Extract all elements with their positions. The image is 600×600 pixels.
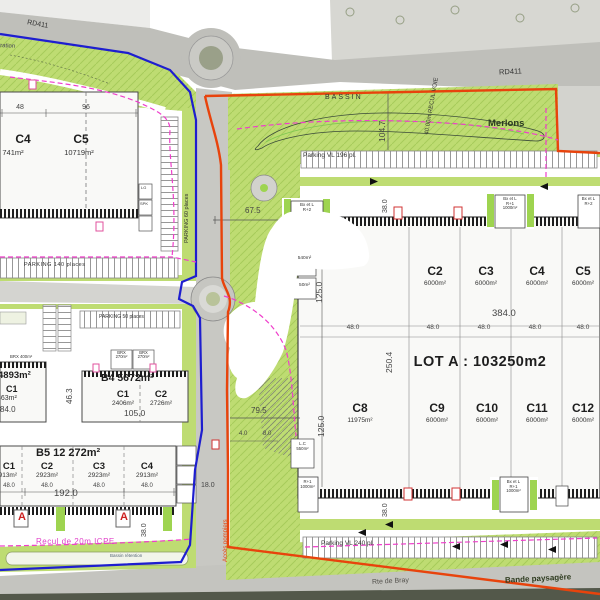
excluded-parcel xyxy=(558,86,600,151)
lota-d48-3: 48.0 xyxy=(469,325,499,332)
dim-79-5: 79.5 xyxy=(251,407,267,415)
lota-c5: C5 xyxy=(561,265,600,278)
lot-a-label: LOT A : 103250m2 xyxy=(385,355,575,370)
b5-c4-area: 2913m² xyxy=(127,473,167,480)
b5-title: B5 12 272m² xyxy=(36,448,100,460)
dim-38-top: 38.0 xyxy=(382,199,389,213)
lota-c9-area: 6000m² xyxy=(415,418,459,425)
label-brx-400: BRX 400m² xyxy=(10,355,32,360)
label-parking-60: PARKING 60 places xyxy=(185,194,191,243)
b5-c3-w: 48.0 xyxy=(79,483,119,489)
b5-c2-area: 2923m² xyxy=(27,473,67,480)
b5-depth: 38.0 xyxy=(141,523,148,537)
b4-c2-area: 2726m² xyxy=(146,401,176,408)
office-sw-label: R+1 1000m² xyxy=(297,480,318,489)
annex-50 xyxy=(293,278,316,299)
b3-c1: C1 xyxy=(6,385,18,394)
b5-c1: C1 xyxy=(0,462,29,472)
label-infiltration: d'infiltration xyxy=(0,42,15,50)
dim-104-7: 104.7 xyxy=(378,121,387,142)
annex-lc-label: L.C 550m² xyxy=(290,442,315,451)
brx-270-b: BRX 270m² xyxy=(133,351,154,360)
site-plan: RD411 RD411 Rte de Bray Bande paysagère … xyxy=(0,0,600,600)
lota-c10-area: 6000m² xyxy=(465,418,509,425)
b4-c1: C1 xyxy=(108,390,138,400)
lota-d250: 250.4 xyxy=(385,352,394,373)
office-n-label: Bx et L R+1 1000m² xyxy=(495,197,525,211)
lota-c11: C11 xyxy=(515,402,559,415)
office-nw-label: Bx et L R+2 xyxy=(291,203,323,212)
marker-a-1: A xyxy=(18,512,26,524)
dim-18-0: 18.0 xyxy=(201,482,215,489)
b5-c3-area: 2923m² xyxy=(79,473,119,480)
b5-width: 192.0 xyxy=(54,489,78,499)
label-parking-50: PARKING 50 places xyxy=(99,315,144,320)
site-plan-drawing xyxy=(0,0,600,600)
utility-spk: SPK xyxy=(140,202,148,206)
lota-d48-2: 48.0 xyxy=(418,325,448,332)
lota-c3: C3 xyxy=(464,265,508,278)
lota-c11-area: 6000m² xyxy=(515,418,559,425)
b4-c2: C2 xyxy=(146,390,176,400)
b5-c3: C3 xyxy=(79,462,119,472)
lota-c8: C8 xyxy=(338,402,382,415)
b5-c1-area: 2913m² xyxy=(0,473,26,480)
b4-depth: 46.3 xyxy=(66,388,74,404)
lota-d48-1: 48.0 xyxy=(338,325,368,332)
lota-d48-5: 48.0 xyxy=(568,325,598,332)
parking-60-strip xyxy=(161,117,178,251)
lota-c4: C4 xyxy=(515,265,559,278)
dim-4-0: 4.0 xyxy=(239,431,247,437)
label-bassin: BASSIN xyxy=(325,94,363,101)
marker-a-2: A xyxy=(120,512,128,524)
office-ne-label: Bx et L R+2 xyxy=(578,197,599,206)
dim-96: 96 xyxy=(76,104,96,111)
lota-c2: C2 xyxy=(413,265,457,278)
label-bassin-retention: Bassin rétention xyxy=(110,554,142,559)
b4-title: B4 5672m² xyxy=(101,373,154,384)
lota-c12: C12 xyxy=(561,402,600,415)
cell-c4-area: 741m² xyxy=(0,149,32,157)
label-merlons: Merlons xyxy=(488,119,524,129)
dim-67-5: 67.5 xyxy=(245,207,261,215)
label-parking-vl240: Parking VL 240 pl. xyxy=(321,541,374,548)
utility-boxes xyxy=(139,216,152,231)
b4-width: 105.0 xyxy=(124,409,145,418)
b5-c2: C2 xyxy=(27,462,67,472)
annex-540-label: 540m² xyxy=(293,256,316,261)
office-s-label: Bx et L R+1 1000m² xyxy=(499,480,528,494)
road-label-rd411-east: RD411 xyxy=(499,67,522,76)
lota-d384: 384.0 xyxy=(492,309,516,319)
lota-c4-area: 6000m² xyxy=(515,281,559,288)
b3-dim: 84.0 xyxy=(0,406,16,414)
lota-c5-area: 6000m² xyxy=(561,281,600,288)
brx-270-a: BRX 270m² xyxy=(111,351,132,360)
cell-c5-area: 10719m² xyxy=(56,149,102,157)
b5-c1-w: 48.0 xyxy=(0,483,29,489)
b5-c4: C4 xyxy=(127,462,167,472)
lota-c12-area: 6000m² xyxy=(561,418,600,425)
label-parking-140: PARKING 140 places xyxy=(24,263,85,269)
lota-c3-area: 6000m² xyxy=(464,281,508,288)
label-acces-pompiers: Accès pompiers xyxy=(223,519,229,562)
lota-d125-bottom: 125.0 xyxy=(317,416,326,437)
b4-c1-area: 2406m² xyxy=(108,401,138,408)
lota-c8-area: 11975m² xyxy=(338,418,382,425)
lota-c2-area: 6000m² xyxy=(413,281,457,288)
cell-c4: C4 xyxy=(8,133,38,146)
lota-c10: C10 xyxy=(465,402,509,415)
dim-8-0: 8.0 xyxy=(263,431,271,437)
lota-c9: C9 xyxy=(415,402,459,415)
lota-d125-top: 125.0 xyxy=(315,282,324,303)
cell-c5: C5 xyxy=(66,133,96,146)
dim-38-bottom: 38.0 xyxy=(382,503,389,517)
lota-d48-4: 48.0 xyxy=(520,325,550,332)
dim-48: 48 xyxy=(10,104,30,111)
b5-c4-w: 48.0 xyxy=(127,483,167,489)
label-recul-icpe: Recul de 20m ICPE xyxy=(36,538,115,546)
parking-columns xyxy=(58,305,71,351)
label-parking-vl196: Parking VL 196 pl. xyxy=(303,153,356,160)
annex-50-label: 50m² xyxy=(293,283,316,288)
utility-lg: LG xyxy=(141,186,146,190)
b3-area: 4893m² xyxy=(0,371,31,381)
b3-c1-area: 463m² xyxy=(0,395,17,402)
